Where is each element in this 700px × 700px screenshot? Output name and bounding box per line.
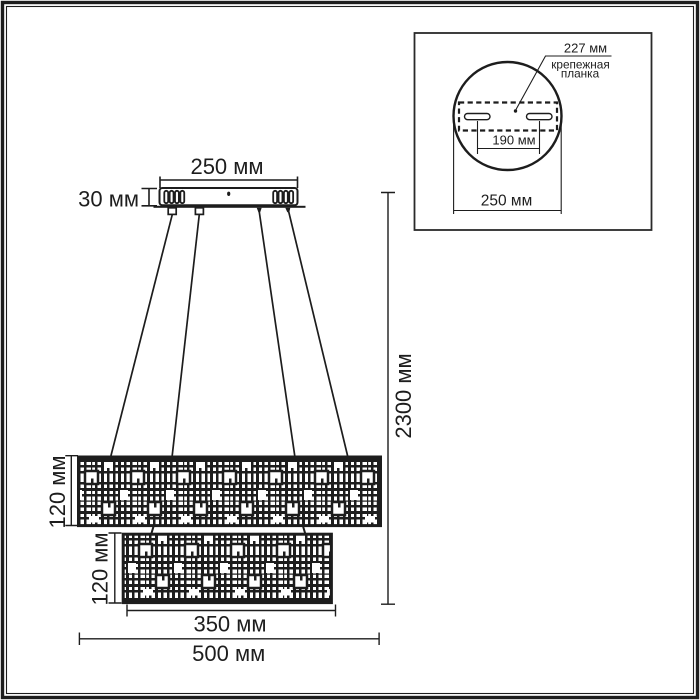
svg-text:190 мм: 190 мм: [492, 133, 535, 148]
svg-text:500 мм: 500 мм: [192, 641, 265, 666]
svg-text:227 мм: 227 мм: [564, 41, 607, 56]
svg-text:120 мм: 120 мм: [45, 455, 70, 528]
svg-text:250 мм: 250 мм: [190, 154, 263, 179]
svg-text:планка: планка: [561, 66, 600, 80]
svg-text:120 мм: 120 мм: [88, 532, 113, 605]
svg-text:30 мм: 30 мм: [78, 187, 139, 212]
svg-text:350 мм: 350 мм: [193, 612, 266, 637]
svg-text:250 мм: 250 мм: [481, 193, 532, 210]
svg-text:2300 мм: 2300 мм: [391, 353, 416, 438]
